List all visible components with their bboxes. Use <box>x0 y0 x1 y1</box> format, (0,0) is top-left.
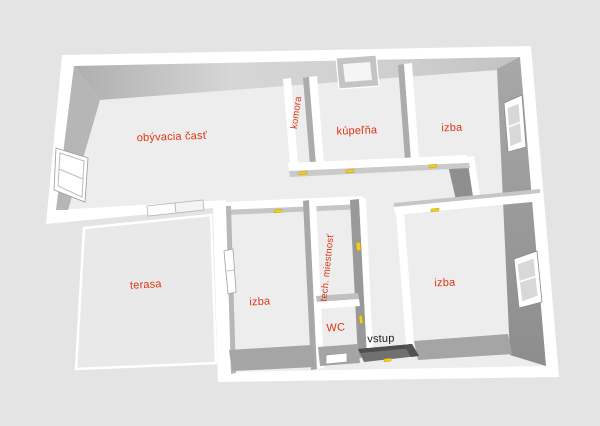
label-living-room: obývacia časť <box>137 130 208 144</box>
label-room-bottom-right: izba <box>434 277 456 290</box>
label-terrace: terasa <box>130 278 163 292</box>
label-entry: vstup <box>367 333 395 346</box>
floorplan-canvas: obývacia časť komora kúpeľňa izba terasa… <box>0 0 600 426</box>
label-bathroom: kúpeľňa <box>336 124 378 137</box>
label-wc: WC <box>326 322 345 335</box>
label-room-bottom-middle: izba <box>249 295 271 308</box>
terrace-floor <box>76 215 216 369</box>
skylight-bathroom <box>336 55 379 89</box>
label-room-top-right: izba <box>441 122 463 135</box>
window-room-top-right <box>504 95 526 152</box>
floorplan-screenshot: obývacia časť komora kúpeľňa izba terasa… <box>0 0 600 426</box>
window-room-bottom-right <box>514 251 542 308</box>
window-wc <box>326 353 347 364</box>
door-marker-utility <box>356 242 361 251</box>
